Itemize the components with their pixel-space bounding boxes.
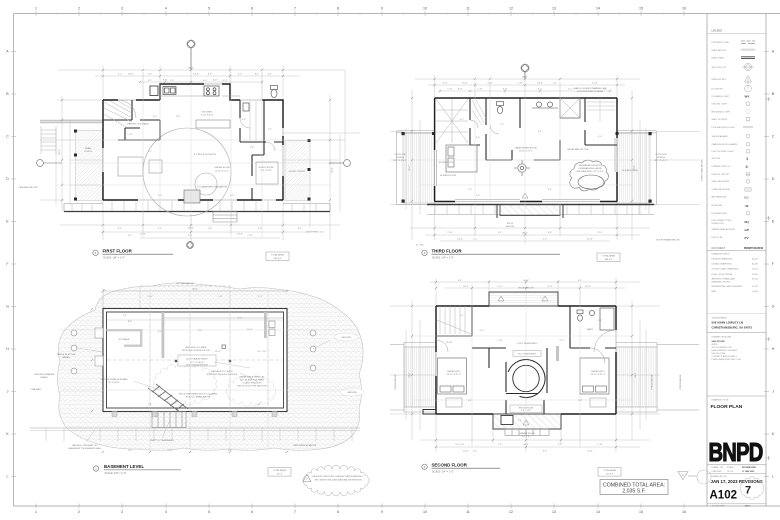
svg-text:SCALE: SCALE: [727, 466, 734, 469]
svg-text:TOTAL AREA: TOTAL AREA: [603, 469, 616, 472]
svg-text:12: 12: [509, 7, 513, 11]
svg-text:REPLACE V.D' EAVE: REPLACE V.D' EAVE: [186, 346, 208, 349]
svg-text:14'-2": 14'-2": [457, 239, 463, 241]
svg-text:8'-0": 8'-0": [458, 89, 463, 91]
svg-text:SMOKE ALARM: SMOKE ALARM: [712, 135, 728, 138]
svg-text:CHECKED: CHECKED: [712, 471, 723, 473]
svg-text:WITH SLIP SHOVEL 8 HOOKS: WITH SLIP SHOVEL 8 HOOKS: [207, 374, 238, 376]
svg-text:22'-8" X 17'-7": 22'-8" X 17'-7": [519, 151, 533, 153]
svg-text:2'-8": 2'-8": [176, 116, 180, 118]
svg-text:DISTRIBUTED: DISTRIBUTED: [742, 467, 756, 469]
svg-text:DESIGN DRAWINGS: DESIGN DRAWINGS: [712, 257, 733, 260]
svg-text:16: 16: [682, 510, 686, 514]
svg-text:OWNER / BUILDER: OWNER / BUILDER: [712, 336, 732, 338]
svg-text:9: 9: [381, 510, 383, 514]
svg-text:12' X 8' ...: 12' X 8' ...: [522, 436, 532, 438]
svg-text:16'-1": 16'-1": [462, 83, 468, 85]
svg-text:8'-6": 8'-6": [458, 280, 462, 282]
svg-text:GROUND: GROUND: [347, 392, 357, 394]
svg-text:6'-0": 6'-0": [230, 195, 234, 197]
svg-text:1: 1: [35, 510, 37, 514]
svg-text:8: 8: [337, 510, 339, 514]
svg-text:R.O. 3'-0": R.O. 3'-0": [456, 444, 465, 446]
svg-text:12'-6": 12'-6": [587, 239, 593, 241]
svg-text:SCALE: 1/4" = 1'-0": SCALE: 1/4" = 1'-0": [432, 470, 454, 473]
svg-text:25'-0": 25'-0": [59, 149, 61, 155]
svg-text:FIRST FLOOR: FIRST FLOOR: [103, 248, 133, 253]
svg-text:E-100: E-100: [752, 279, 759, 281]
svg-text:9'-8": 9'-8": [163, 80, 168, 82]
svg-text:AIR HANDLER: AIR HANDLER: [712, 196, 727, 199]
svg-text:11: 11: [466, 510, 470, 514]
svg-text:SCALE: 1/8" = 1'-0": SCALE: 1/8" = 1'-0": [105, 472, 127, 475]
svg-text:11'-5": 11'-5": [592, 83, 598, 85]
svg-text:D: D: [6, 177, 9, 181]
svg-text:4: 4: [165, 510, 167, 514]
svg-text:DRAWING TITLE: DRAWING TITLE: [712, 398, 730, 401]
svg-text:WINDOW KEY: WINDOW KEY: [712, 79, 727, 81]
svg-text:14'-2": 14'-2": [463, 451, 469, 453]
svg-text:3: 3: [121, 7, 123, 11]
svg-text:13: 13: [552, 510, 556, 514]
svg-text:2: 2: [78, 510, 80, 514]
svg-text:9'-4": 9'-4": [473, 451, 477, 453]
svg-text:5'-2": 5'-2": [228, 450, 232, 452]
svg-text:8'-6": 8'-6": [238, 318, 242, 320]
svg-text:24'-0": 24'-0": [409, 372, 411, 378]
svg-text:BASEMENT LEVEL: BASEMENT LEVEL: [104, 464, 144, 469]
svg-text:33'-6": 33'-6": [188, 68, 194, 70]
svg-text:12'-3": 12'-3": [257, 296, 263, 298]
svg-text:FLOOR PLAN: FLOOR PLAN: [711, 404, 743, 410]
svg-text:F-100: F-100: [752, 286, 758, 288]
svg-text:48'-0": 48'-0": [522, 233, 528, 235]
svg-text:GENERAL NOTES: GENERAL NOTES: [712, 280, 731, 283]
svg-text:DUPLEX OUTLET: DUPLEX OUTLET: [712, 174, 731, 176]
svg-text:5: 5: [208, 7, 210, 11]
svg-text:1'-10": 1'-10": [147, 296, 153, 298]
svg-text:4'-1": 4'-1": [598, 320, 602, 322]
svg-text:3'-0": 3'-0": [158, 228, 162, 230]
svg-text:MAY WINDOW ABOVE: MAY WINDOW ABOVE: [294, 444, 317, 447]
svg-text:1'-10": 1'-10": [597, 444, 603, 446]
svg-text:PORCH: PORCH: [84, 151, 92, 153]
svg-text:SLIP SUSLM 8 HOOK: SLIP SUSLM 8 HOOK: [186, 365, 208, 367]
svg-text:PANTRY / STORAGE: PANTRY / STORAGE: [127, 123, 149, 126]
svg-text:SHOWER DISC. 8'2" X 6'4": SHOWER DISC. 8'2" X 6'4": [577, 171, 604, 173]
svg-text:wP: wP: [744, 228, 749, 232]
svg-text:SWITCH: SWITCH: [712, 158, 721, 160]
svg-text:WV: WV: [745, 95, 750, 99]
svg-text:PORCH: PORCH: [396, 157, 404, 159]
svg-text:20'-4": 20'-4": [332, 167, 334, 173]
svg-text:LEGEND: LEGEND: [712, 29, 723, 33]
svg-text:868 S.F.: 868 S.F.: [605, 259, 613, 261]
svg-text:6'-0": 6'-0": [203, 80, 207, 82]
svg-text:PHOTO EL.: PHOTO EL.: [712, 237, 724, 239]
svg-text:1'-10": 1'-10": [447, 89, 453, 91]
svg-text:3'-0": 3'-0": [128, 450, 132, 452]
svg-text:PORCH ABOVE: PORCH ABOVE: [651, 374, 654, 390]
svg-text:4: 4: [165, 7, 167, 11]
svg-text:MEP: MEP: [712, 291, 717, 293]
svg-text:BACKFILL RETRIME 1ST: BACKFILL RETRIME 1ST: [72, 444, 98, 447]
svg-text:COAX RECEIVER: COAX RECEIVER: [712, 188, 730, 191]
svg-text:-W: -W: [745, 204, 749, 208]
svg-text:PSA HOMES@NETORI.COM: PSA HOMES@NETORI.COM: [712, 358, 741, 361]
svg-text:SWALE: SWALE: [40, 376, 48, 379]
svg-text:FOR VENTILATION HERE: FOR VENTILATION HERE: [577, 90, 604, 93]
svg-text:P-100: P-100: [752, 274, 759, 276]
svg-text:12' DIAMETER DOME ABOVE: 12' DIAMETER DOME ABOVE: [197, 186, 227, 189]
svg-text:8: 8: [337, 7, 339, 11]
svg-text:6: 6: [251, 7, 253, 11]
svg-text:16' X 16'-8": 16' X 16'-8": [108, 382, 119, 384]
svg-text:6'-0": 6'-0": [598, 136, 602, 138]
svg-text:14'-6": 14'-6": [537, 83, 543, 85]
svg-text:COMBINED TOTAL AREA:: COMBINED TOTAL AREA:: [603, 482, 665, 488]
svg-text:DIMMER SWITCH: DIMMER SWITCH: [712, 166, 731, 168]
svg-text:17 JAN 2023: 17 JAN 2023: [742, 470, 755, 473]
svg-text:3'-0": 3'-0": [153, 116, 157, 118]
svg-text:JOB ADDRESS: JOB ADDRESS: [712, 317, 728, 320]
svg-text:AREAS: AREAS: [62, 356, 70, 359]
svg-text:540-522-5296: 540-522-5296: [712, 353, 726, 355]
svg-text:20'-9" X 11'-1": 20'-9" X 11'-1": [215, 170, 229, 172]
svg-text:ROOF TRAIL BELOW: ROOF TRAIL BELOW: [701, 158, 704, 180]
svg-text:5'-2": 5'-2": [460, 119, 464, 121]
svg-text:1'-10": 1'-10": [217, 296, 223, 298]
svg-text:JAN 17, 2023 REVISIONS: JAN 17, 2023 REVISIONS: [711, 479, 763, 484]
svg-text:6: 6: [251, 510, 253, 514]
svg-text:5'-2": 5'-2": [188, 235, 192, 237]
svg-text:22'-6": 22'-6": [634, 165, 636, 171]
svg-text:M•|: M•|: [745, 220, 750, 224]
svg-text:PORCH: PORCH: [657, 157, 665, 159]
svg-text:DOCUMENT: DOCUMENT: [712, 247, 726, 250]
svg-text:5'-2": 5'-2": [268, 129, 272, 131]
svg-text:12'-0": 12'-0": [585, 286, 591, 288]
svg-text:RESIDENTIAL IMPROVEMENT: RESIDENTIAL IMPROVEMENT: [712, 285, 744, 288]
svg-text:12'-3": 12'-3": [487, 83, 493, 85]
svg-text:PHASE: CA: PHASE: CA: [712, 466, 724, 469]
svg-text:CEILING LIGHT: CEILING LIGHT: [712, 104, 728, 106]
svg-text:ROOF: ROOF: [507, 223, 514, 225]
svg-text:CARBON MONO. ALARM: CARBON MONO. ALARM: [712, 143, 738, 146]
svg-text:1'-10": 1'-10": [127, 134, 133, 136]
svg-text:BATH: BATH: [587, 328, 593, 331]
svg-text:8'-6": 8'-6": [548, 232, 552, 234]
svg-text:10'-2": 10'-2": [215, 351, 221, 353]
svg-text:22'-6": 22'-6": [409, 165, 411, 171]
svg-text:6'-0": 6'-0": [118, 228, 122, 230]
svg-text:8'-6": 8'-6": [242, 119, 246, 121]
svg-text:DOOR KEY: DOOR KEY: [712, 89, 724, 91]
svg-text:1'-10": 1'-10": [247, 235, 253, 237]
svg-text:557.5: 557.5: [277, 474, 283, 476]
svg-text:4'-1": 4'-1": [460, 315, 464, 317]
svg-text:BELOW: BELOW: [506, 226, 515, 228]
svg-text:1: 1: [35, 7, 37, 11]
svg-text:A102: A102: [710, 490, 738, 502]
svg-text:CHECKED HEADER: CHECKED HEADER: [34, 373, 55, 376]
svg-text:DUCT RISER RING: DUCT RISER RING: [517, 343, 537, 345]
svg-text:WOOD BROWNED WOOD COLUMNS: WOOD BROWNED WOOD COLUMNS: [179, 394, 218, 396]
svg-text:14: 14: [596, 7, 600, 11]
svg-text:C: C: [772, 135, 775, 139]
svg-text:PULL UP FUEL LIGHT: PULL UP FUEL LIGHT: [712, 151, 735, 153]
svg-text:PROPERTY LINE: PROPERTY LINE: [712, 42, 730, 44]
svg-text:7'-6": 7'-6": [473, 239, 477, 241]
svg-text:BLACKSBURG, VA 24060: BLACKSBURG, VA 24060: [712, 349, 738, 352]
svg-text:EMPTY TO BASEMENT: EMPTY TO BASEMENT: [150, 439, 174, 442]
svg-text:STRUCTURAL DRAWINGS: STRUCTURAL DRAWINGS: [712, 267, 740, 270]
svg-text:9'-4": 9'-4": [538, 131, 542, 133]
svg-text:7: 7: [745, 485, 751, 497]
svg-text:11'-2": 11'-2": [479, 330, 484, 332]
svg-text:SECOND FLOOR: SECOND FLOOR: [432, 462, 468, 467]
svg-text:34'-0": 34'-0": [192, 289, 198, 291]
svg-text:FOR U.S. BEAM ABOVE: FOR U.S. BEAM ABOVE: [186, 396, 211, 399]
svg-text:OUTDOOR: OUTDOOR: [394, 154, 406, 156]
svg-text:15: 15: [639, 510, 643, 514]
svg-text:7: 7: [294, 7, 296, 11]
svg-text:GROUND: GROUND: [341, 337, 351, 339]
svg-text:10: 10: [423, 510, 427, 514]
svg-text:16'-2": 16'-2": [128, 74, 134, 76]
svg-text:4'-7 3/4": 4'-7 3/4": [416, 245, 424, 247]
svg-text:11'-2": 11'-2": [497, 286, 502, 288]
svg-text:SLIDING DOOR: SLIDING DOOR: [622, 170, 638, 172]
svg-text:SAM ROSKE: SAM ROSKE: [712, 340, 726, 343]
svg-text:3'-0": 3'-0": [238, 74, 242, 76]
svg-text:PLUMBING VENT: PLUMBING VENT: [712, 96, 731, 98]
svg-text:A-100: A-100: [752, 257, 759, 260]
svg-text:11: 11: [466, 7, 470, 11]
svg-text:C: C: [6, 135, 9, 139]
svg-text:12'-3": 12'-3": [597, 232, 603, 234]
svg-text:J: J: [772, 390, 774, 394]
svg-text:BNPD: BNPD: [712, 344, 718, 346]
svg-text:$: $: [746, 157, 748, 161]
svg-text:1'-10": 1'-10": [517, 83, 523, 85]
svg-text:2: 2: [78, 7, 80, 11]
svg-text:SLIDING DOOR: SLIDING DOOR: [440, 175, 456, 177]
svg-text:JOB NUMBER: JOB NUMBER: [712, 505, 726, 507]
svg-text:HOSE BIB: HOSE BIB: [712, 205, 723, 207]
svg-text:24'-0": 24'-0": [635, 372, 637, 378]
svg-text:22'-7" X 36'-5": 22'-7" X 36'-5": [190, 362, 204, 364]
svg-text:16: 16: [682, 7, 686, 11]
svg-text:565 S.F.: 565 S.F.: [274, 258, 282, 260]
svg-text:PORCH ABOVE: PORCH ABOVE: [679, 374, 682, 390]
svg-text:12: 12: [509, 510, 513, 514]
svg-text:2'-8": 2'-8": [208, 228, 212, 230]
svg-text:2'-8": 2'-8": [123, 315, 127, 317]
svg-text:12'-4": 12'-4": [193, 74, 199, 76]
svg-text:3'-0": 3'-0": [198, 330, 202, 332]
svg-text:G: G: [6, 305, 9, 309]
svg-text:2'-8": 2'-8": [250, 147, 254, 149]
svg-text:RECESSED LIGHT: RECESSED LIGHT: [712, 112, 732, 114]
svg-text:12'-3": 12'-3": [547, 286, 553, 288]
svg-text:6'-0": 6'-0": [128, 235, 132, 237]
svg-text:6'-2": 6'-2": [503, 89, 508, 91]
svg-text:SLIDING DOOR: SLIDING DOOR: [439, 162, 454, 164]
svg-text:GUEST ROOM: GUEST ROOM: [259, 167, 274, 169]
svg-text:ARCHITECTURAL AND: ARCHITECTURAL AND: [712, 278, 736, 281]
svg-text:1'-10": 1'-10": [447, 232, 453, 234]
svg-text:8'-6": 8'-6": [543, 451, 547, 453]
svg-text:3: 3: [121, 510, 123, 514]
svg-text:6'-0": 6'-0": [538, 89, 542, 91]
svg-text:7'-6": 7'-6": [518, 420, 522, 422]
svg-text:8'-6": 8'-6": [298, 228, 302, 230]
svg-text:2'-8": 2'-8": [578, 400, 582, 402]
svg-text:SCALE: 1/4" = 1'-0": SCALE: 1/4" = 1'-0": [432, 256, 454, 259]
svg-text:MASTER BEDROOM: MASTER BEDROOM: [515, 147, 536, 150]
svg-text:GREEN ROOM: GREEN ROOM: [519, 433, 534, 435]
svg-text:13'-10" X 11'-1": 13'-10" X 11'-1": [591, 374, 606, 376]
svg-text:7: 7: [294, 510, 296, 514]
svg-text:15: 15: [639, 7, 643, 11]
svg-text:4 CANT WINDOWS: 4 CANT WINDOWS: [242, 382, 262, 385]
svg-text:13'-10" X 11'-1": 13'-10" X 11'-1": [447, 374, 462, 376]
svg-text:10'-5": 10'-5": [237, 234, 243, 236]
svg-text:7'-6": 7'-6": [468, 189, 472, 191]
svg-text:BELOW 9'10" FOR SECTION: BELOW 9'10" FOR SECTION: [238, 386, 267, 388]
svg-text:5'-2": 5'-2": [553, 83, 557, 85]
svg-text:3'-0": 3'-0": [158, 195, 162, 197]
svg-text:DRAWN BY: MJ: DRAWN BY: MJ: [712, 475, 727, 478]
svg-text:WALL SCONCE: WALL SCONCE: [712, 118, 728, 121]
svg-text:7'-6": 7'-6": [500, 124, 504, 126]
svg-text:G-100: G-100: [752, 291, 759, 293]
svg-text:REAR: REAR: [85, 147, 91, 150]
svg-text:(2) STORAGE SHELF: (2) STORAGE SHELF: [186, 358, 208, 361]
svg-text:TOTAL AREA: TOTAL AREA: [273, 469, 286, 472]
svg-text:WALL BELOW: WALL BELOW: [712, 49, 727, 52]
svg-text:AS RAINROOM WITH: AS RAINROOM WITH: [579, 164, 601, 167]
svg-text:321 FLORENCE DR: 321 FLORENCE DR: [712, 347, 732, 349]
svg-text:9'-4": 9'-4": [468, 400, 472, 402]
svg-text:9: 9: [381, 7, 383, 11]
svg-text:4'-1": 4'-1": [148, 80, 152, 82]
svg-text:CRITTER TERROR BOARD: CRITTER TERROR BOARD: [100, 378, 128, 381]
svg-text:DUCT RISER/RING: DUCT RISER/RING: [518, 354, 536, 356]
svg-text:L: L: [7, 475, 9, 479]
svg-text:D: D: [772, 177, 775, 181]
svg-text:$›: $›: [746, 165, 749, 169]
svg-text:12'-3": 12'-3": [222, 80, 228, 82]
svg-text:12'-6": 12'-6": [587, 451, 593, 453]
svg-text:8'-0": 8'-0": [213, 80, 218, 82]
svg-text:KITCHEN DISP.: KITCHEN DISP.: [712, 213, 728, 215]
svg-text:3'-0": 3'-0": [476, 195, 480, 197]
svg-text:BEDROOM 2: BEDROOM 2: [591, 371, 605, 373]
svg-text:4'-1": 4'-1": [158, 331, 162, 333]
svg-text:7'-10" X 9'-0": 7'-10" X 9'-0": [201, 115, 214, 117]
svg-text:10: 10: [423, 7, 427, 11]
svg-text:L: L: [772, 475, 774, 479]
svg-text:CD-15: CD-15: [727, 471, 734, 473]
svg-text:G: G: [772, 305, 775, 309]
svg-text:METAL AND 48" TUB: METAL AND 48" TUB: [568, 148, 589, 151]
svg-text:REPLACE PREVIOUSLY DESIGN "EAR: REPLACE PREVIOUSLY DESIGN "EARTH BACKFIL…: [312, 475, 364, 478]
svg-text:5'-2": 5'-2": [148, 151, 152, 153]
svg-text:2'-8": 2'-8": [603, 89, 607, 91]
svg-text:BNPD: BNPD: [709, 439, 763, 467]
svg-text:A-200: A-200: [752, 262, 759, 265]
svg-text:PORCH ABOVE: PORCH ABOVE: [394, 374, 397, 390]
svg-text:CLOS: CLOS: [446, 342, 452, 344]
svg-text:THIRD FLOOR: THIRD FLOOR: [432, 248, 463, 253]
svg-text:BASEMENT THIS RAISED WALL: BASEMENT THIS RAISED WALL: [69, 447, 103, 450]
svg-text:12'-3": 12'-3": [442, 83, 448, 85]
svg-text:6'-0": 6'-0": [578, 280, 582, 282]
svg-text:INTERLOCK: INTERLOCK: [712, 223, 725, 225]
svg-text:CRA WALL BELOW: CRA WALL BELOW: [18, 186, 38, 189]
svg-text:H: H: [772, 347, 775, 351]
svg-text:5'-2": 5'-2": [568, 89, 572, 91]
svg-text:1'-10": 1'-10": [477, 89, 483, 91]
svg-text:13: 13: [552, 7, 556, 11]
svg-text:J: J: [7, 390, 9, 394]
svg-text:WITH SLIP SUSLM 8 HOOK: WITH SLIP SUSLM 8 HOOK: [182, 350, 210, 352]
svg-text:SET UNDER DRILL AND NATURAL VE: SET UNDER DRILL AND NATURAL VEGETATION: [315, 479, 362, 482]
svg-text:5'-2": 5'-2": [118, 74, 122, 76]
svg-text:WATER HEAT ACCESS: WATER HEAT ACCESS: [712, 228, 736, 231]
svg-text:4'-1": 4'-1": [268, 74, 272, 76]
svg-text:1'-10": 1'-10": [167, 450, 173, 452]
svg-text:DANCE IN STONE: DANCE IN STONE: [57, 353, 76, 356]
svg-text:5: 5: [208, 510, 210, 514]
svg-text:EXIST. WALL: EXIST. WALL: [712, 57, 726, 60]
svg-text:OUTDOOR: OUTDOOR: [655, 154, 667, 156]
svg-text:CONTACT: BEN POWELL: CONTACT: BEN POWELL: [712, 355, 738, 358]
svg-text:SECTION CUT: SECTION CUT: [712, 67, 727, 69]
svg-text:34'-0": 34'-0": [523, 444, 529, 446]
svg-text:H: H: [6, 347, 9, 351]
svg-text:3'-0": 3'-0": [558, 444, 562, 446]
svg-text:7'-6": 7'-6": [170, 80, 174, 82]
svg-text:3'-0": 3'-0": [148, 74, 152, 76]
svg-text:8'-1" X 12'-2": 8'-1" X 12'-2": [655, 160, 668, 162]
svg-text:9'-1" X 9'-10": 9'-1" X 9'-10": [394, 160, 407, 162]
svg-text:DETAIL DRAWINGS: DETAIL DRAWINGS: [712, 262, 733, 265]
svg-text:WALL RECEIVER: WALL RECEIVER: [712, 180, 730, 183]
svg-text:512 S.F.: 512 S.F.: [606, 474, 614, 476]
svg-text:8'-6": 8'-6": [476, 137, 480, 139]
svg-text:8'-4": 8'-4": [128, 321, 133, 323]
svg-text:48'-0": 48'-0": [522, 77, 528, 79]
svg-text:FRONT PORCH: FRONT PORCH: [289, 171, 305, 173]
svg-text:TOTAL AREA: TOTAL AREA: [271, 254, 284, 257]
svg-text:TOTAL AREA: TOTAL AREA: [602, 255, 615, 258]
svg-text:PLBG / ELECTRICAL: PLBG / ELECTRICAL: [712, 273, 734, 276]
svg-text:SCALE: 1/8" = 1'-0": SCALE: 1/8" = 1'-0": [103, 256, 125, 259]
svg-text:STORAGE: STORAGE: [119, 338, 130, 341]
svg-text:8' CIRCLE OF DEPTH: 8' CIRCLE OF DEPTH: [194, 154, 216, 156]
svg-text:DRAWING INDEX: DRAWING INDEX: [712, 253, 730, 256]
svg-text:GOLFVIEW # CO: GOLFVIEW # CO: [306, 232, 324, 234]
svg-text:CRA WALL: CRA WALL: [31, 388, 43, 391]
svg-text:14'-1": 14'-1": [463, 286, 469, 288]
svg-text:PERMIT REVIEW: PERMIT REVIEW: [744, 247, 764, 250]
svg-text:R.O. 3'-0": R.O. 3'-0": [258, 351, 267, 353]
svg-text:BEDROOM 1: BEDROOM 1: [447, 371, 461, 373]
svg-text:8'-6": 8'-6": [548, 189, 552, 191]
